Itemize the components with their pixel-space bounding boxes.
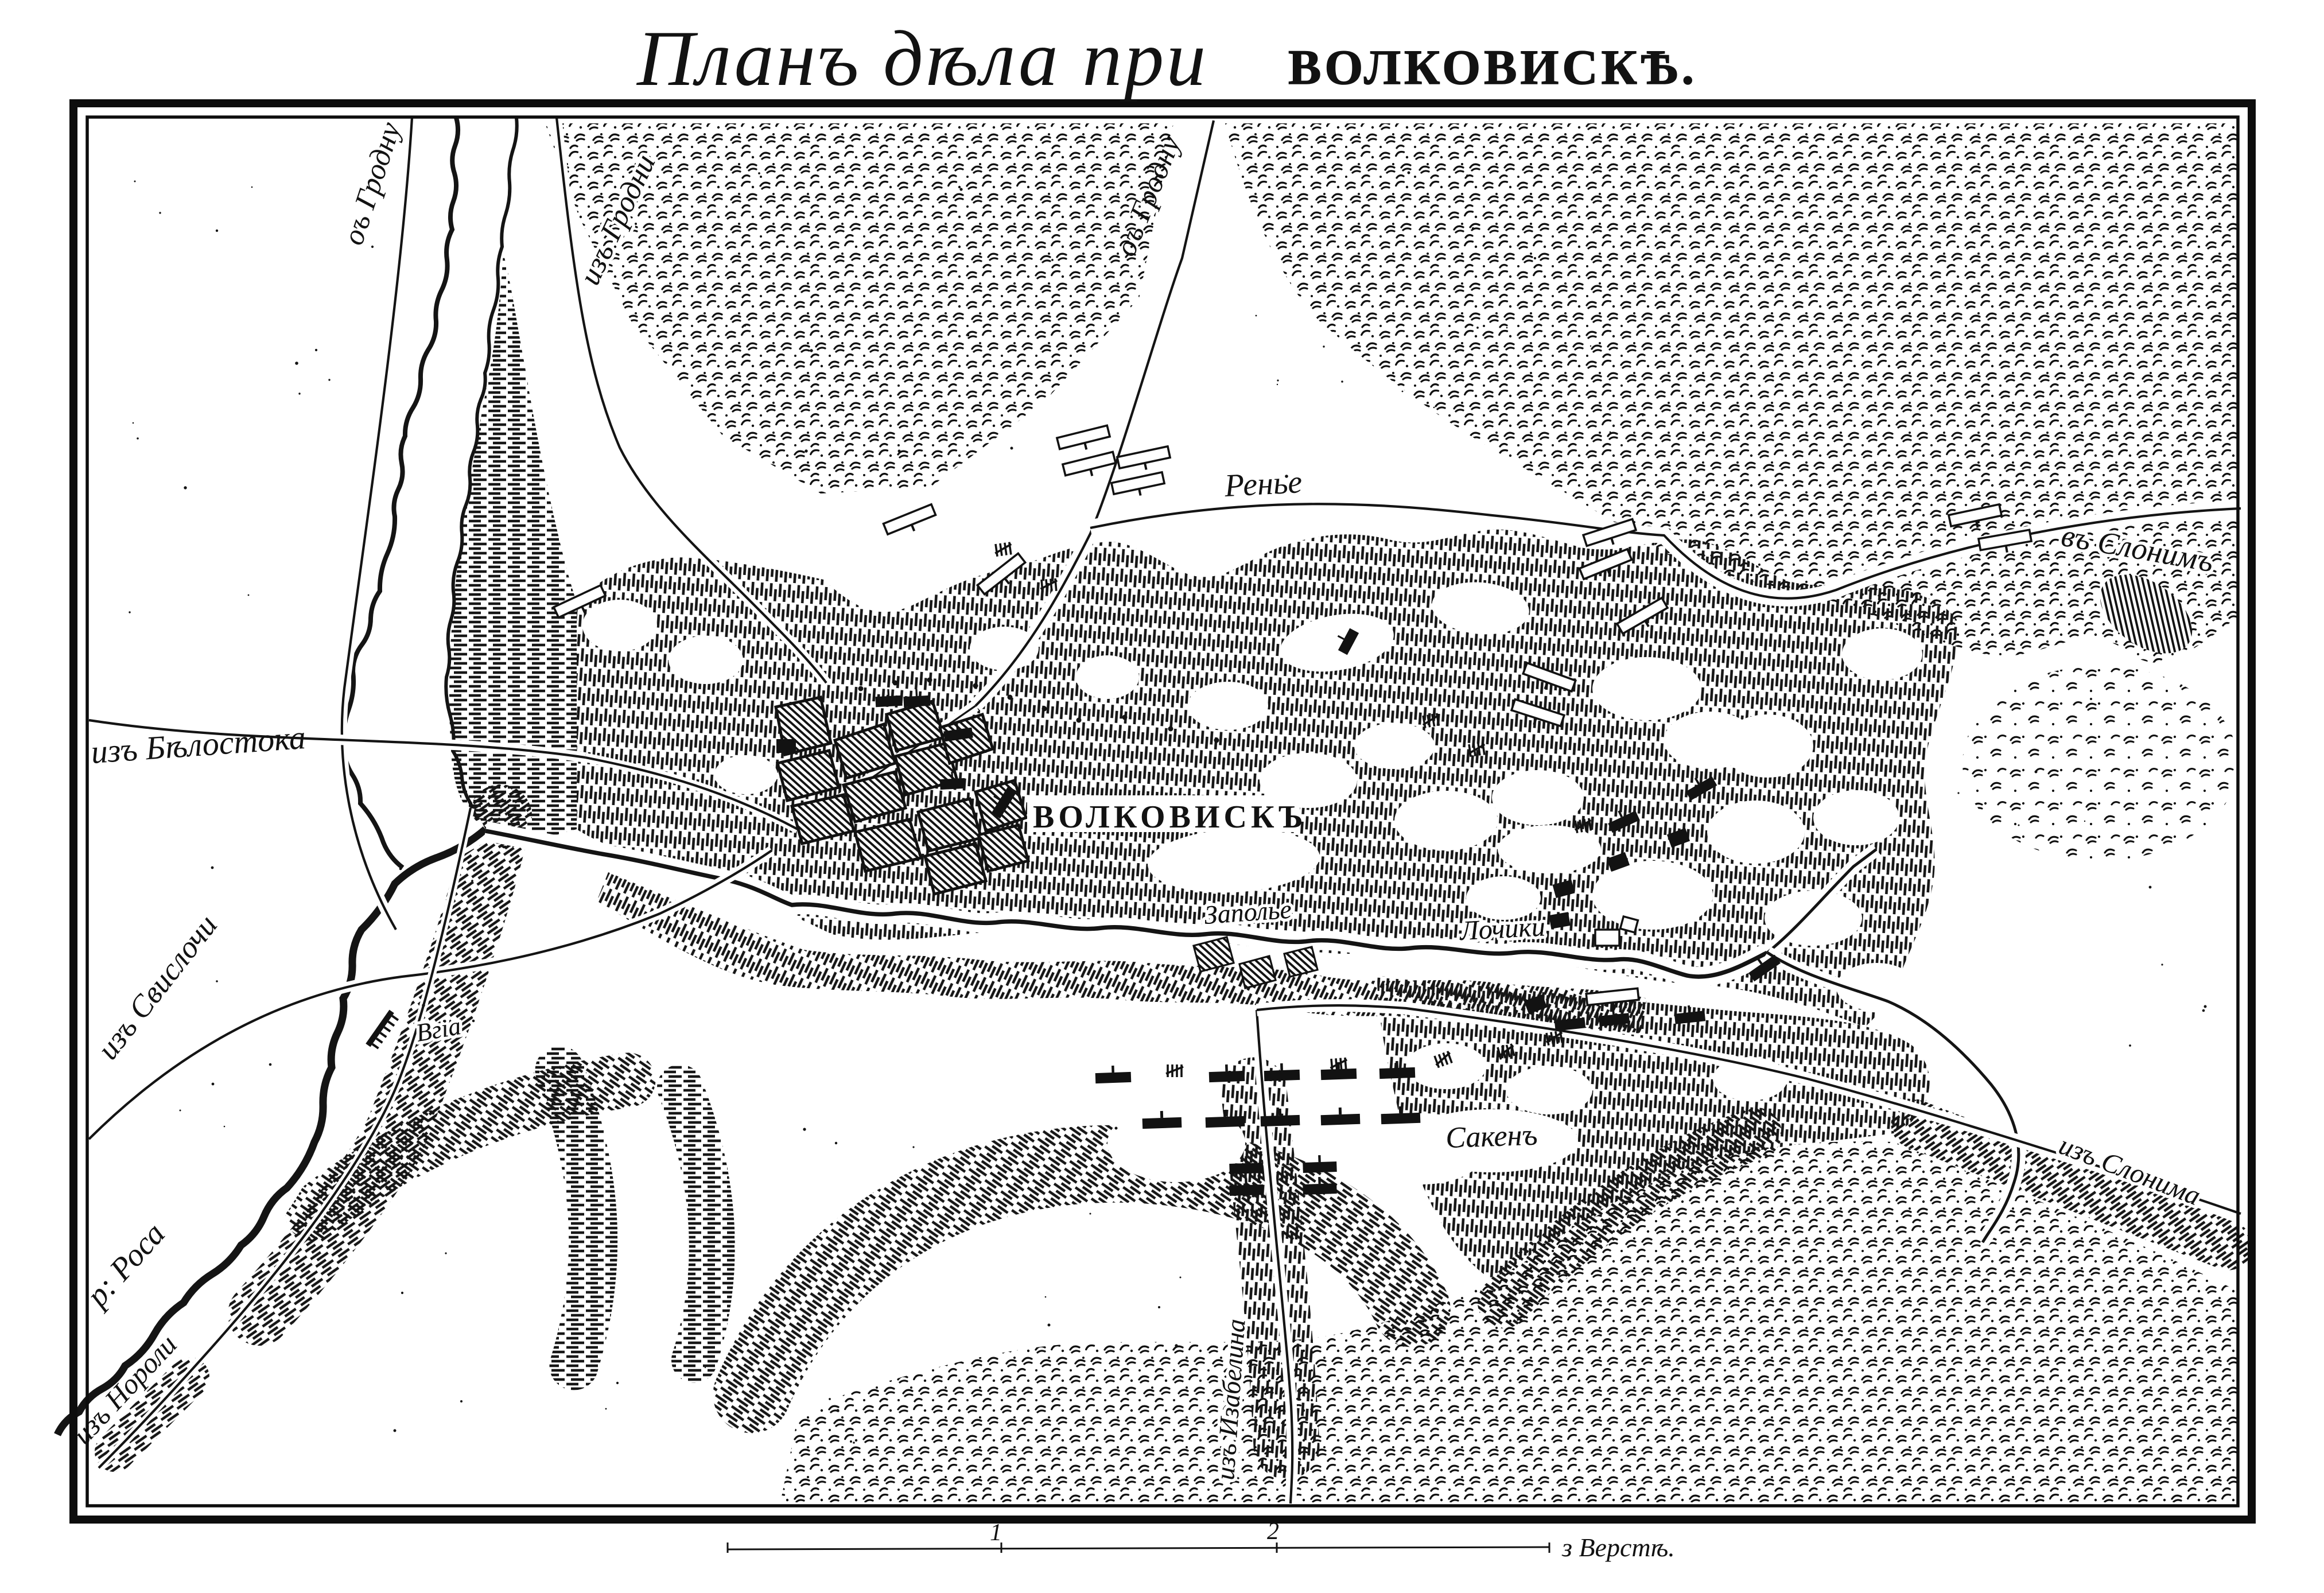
svg-text:Сакенъ: Сакенъ — [1445, 1118, 1538, 1155]
svg-text:ВОЛКОВИСКѢ.: ВОЛКОВИСКѢ. — [1288, 40, 1697, 95]
svg-text:Планъ дѣла при: Планъ дѣла при — [636, 14, 1208, 102]
svg-text:1: 1 — [990, 1520, 1002, 1546]
svg-text:Заполье: Заполье — [1203, 894, 1292, 929]
svg-text:ВОЛКОВИСКЪ: ВОЛКОВИСКЪ — [1033, 799, 1307, 835]
svg-text:Лочики: Лочики — [1458, 911, 1546, 946]
svg-text:Ренье: Ренье — [1223, 464, 1303, 504]
svg-text:з Верстѣ.: з Верстѣ. — [1561, 1533, 1675, 1562]
svg-text:2: 2 — [1267, 1518, 1279, 1545]
